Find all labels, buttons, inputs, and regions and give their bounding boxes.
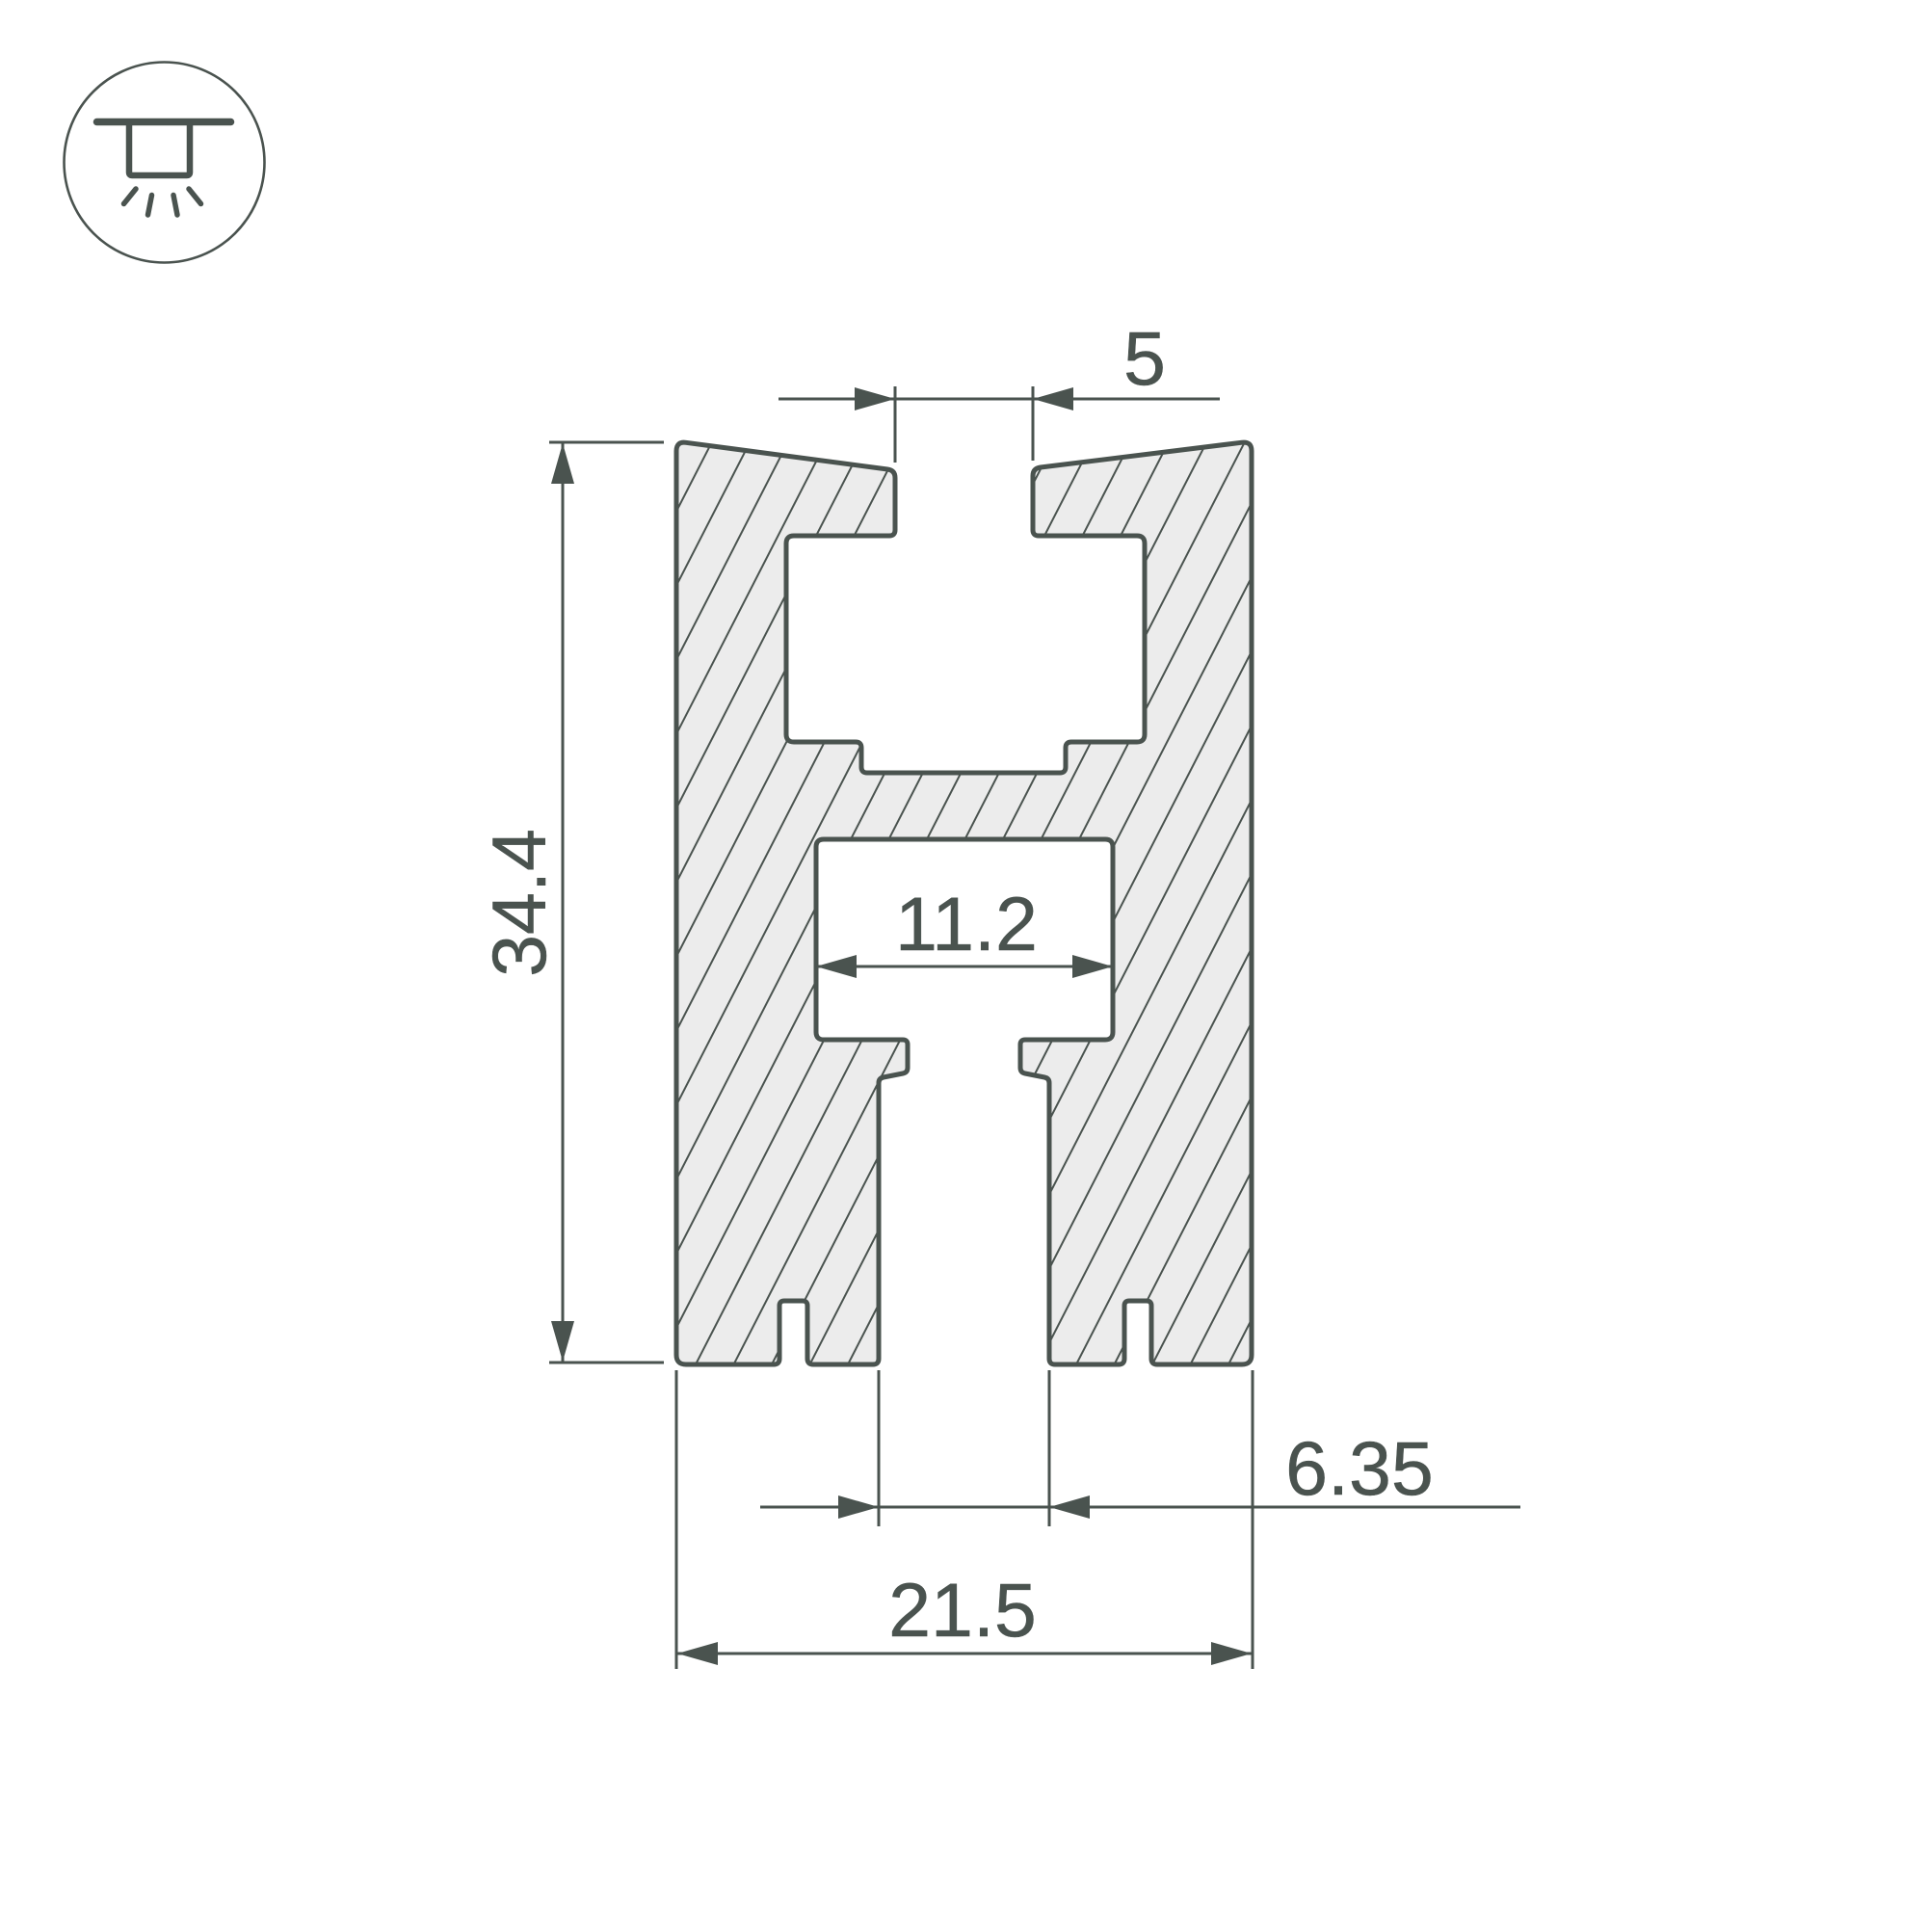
svg-text:6.35: 6.35 [1285,1425,1434,1511]
svg-text:5: 5 [1123,315,1166,401]
svg-text:34.4: 34.4 [476,829,562,977]
svg-text:11.2: 11.2 [895,881,1038,966]
svg-text:21.5: 21.5 [888,1567,1037,1653]
